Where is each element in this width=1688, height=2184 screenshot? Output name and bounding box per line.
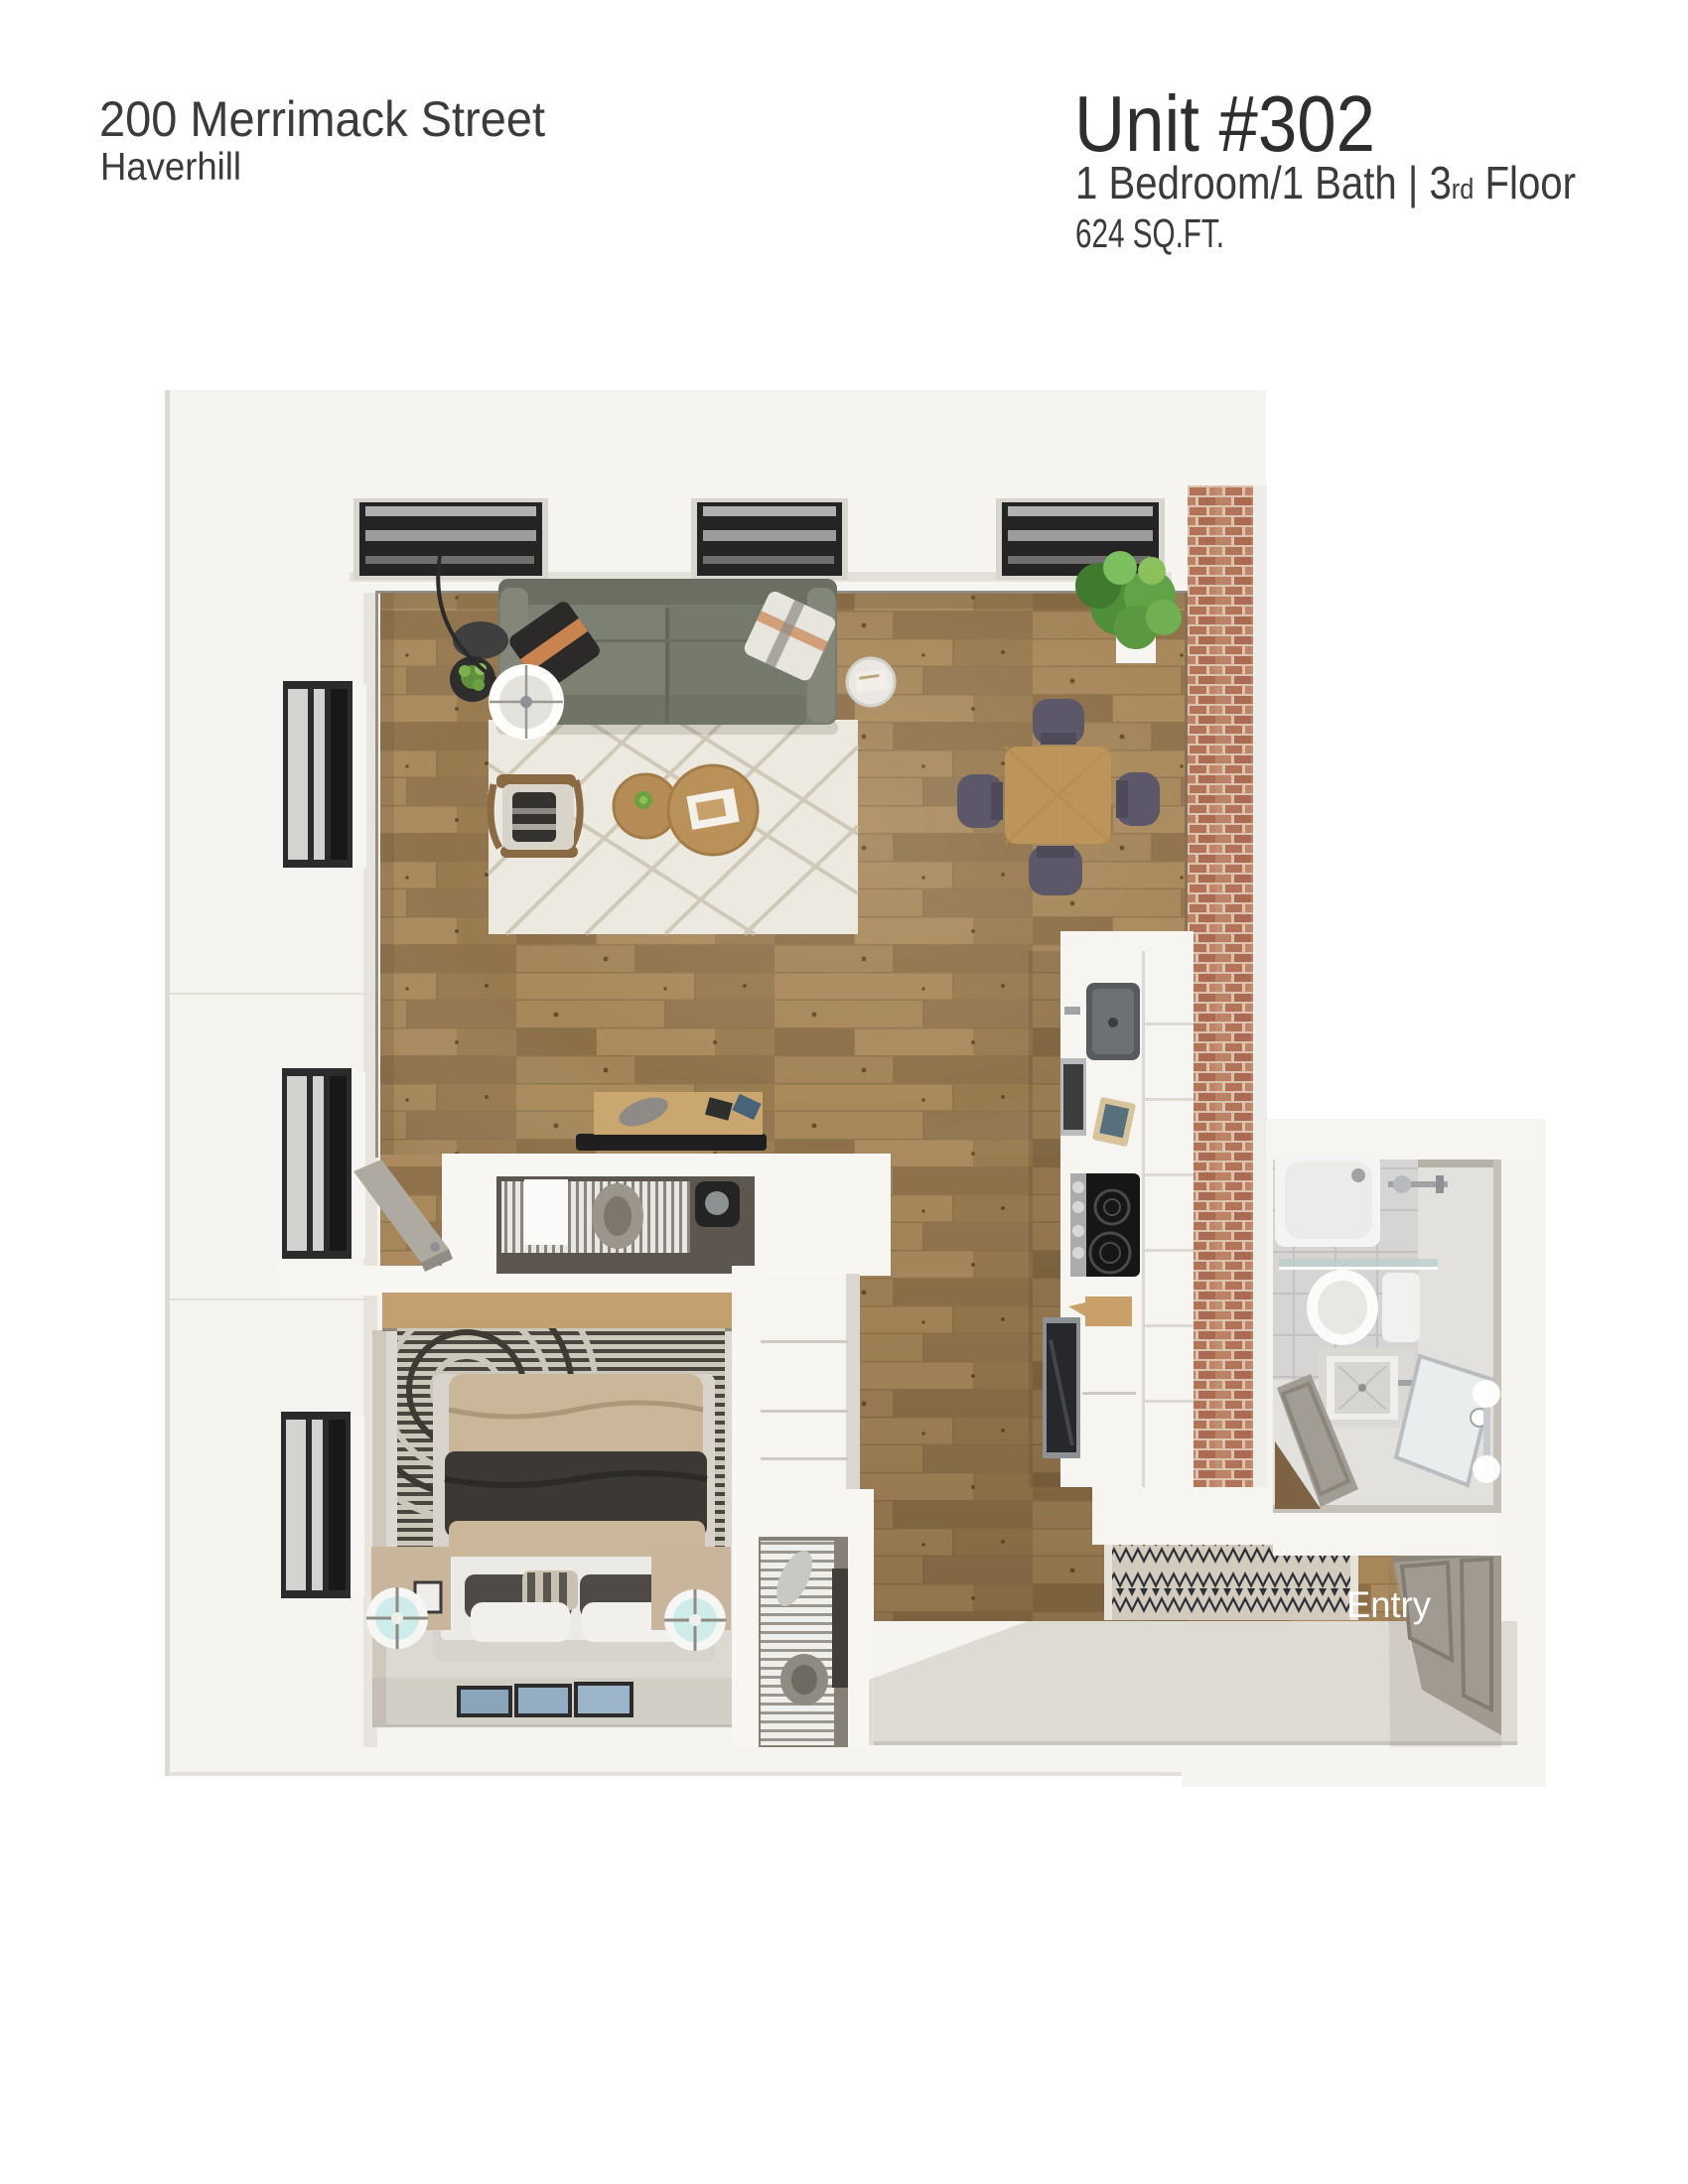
svg-text:200 Merrimack Street: 200 Merrimack Street	[99, 91, 545, 147]
svg-text:624 SQ.FT.: 624 SQ.FT.	[1075, 210, 1224, 256]
svg-text:1 Bedroom/1 Bath | 3rd Floor: 1 Bedroom/1 Bath | 3rd Floor	[1075, 157, 1576, 208]
svg-text:Haverhill: Haverhill	[100, 146, 241, 189]
svg-text:Unit #302: Unit #302	[1074, 79, 1375, 168]
svg-text:Entry: Entry	[1346, 1584, 1431, 1625]
